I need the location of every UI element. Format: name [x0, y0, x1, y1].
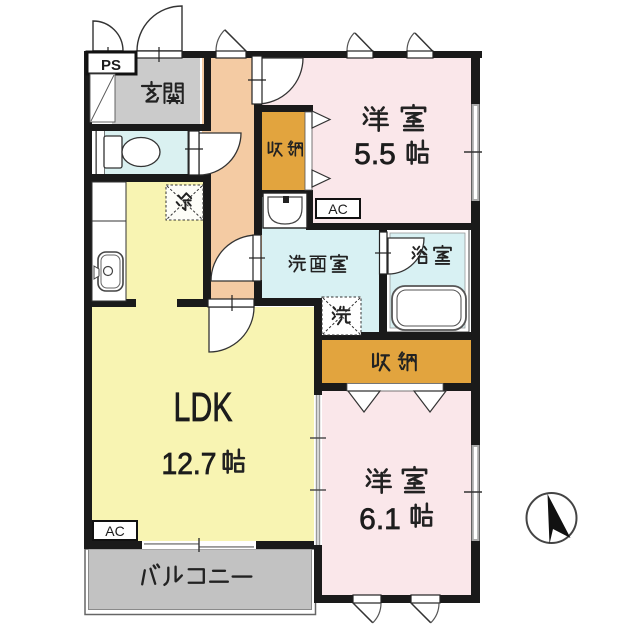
svg-text:12.7: 12.7: [162, 446, 217, 481]
svg-text:LDK: LDK: [174, 384, 233, 430]
svg-text:AC: AC: [105, 523, 124, 539]
svg-text:5.5: 5.5: [354, 138, 396, 171]
svg-text:6.1: 6.1: [359, 503, 401, 536]
svg-text:AC: AC: [328, 201, 347, 217]
svg-text:PS: PS: [101, 57, 121, 74]
